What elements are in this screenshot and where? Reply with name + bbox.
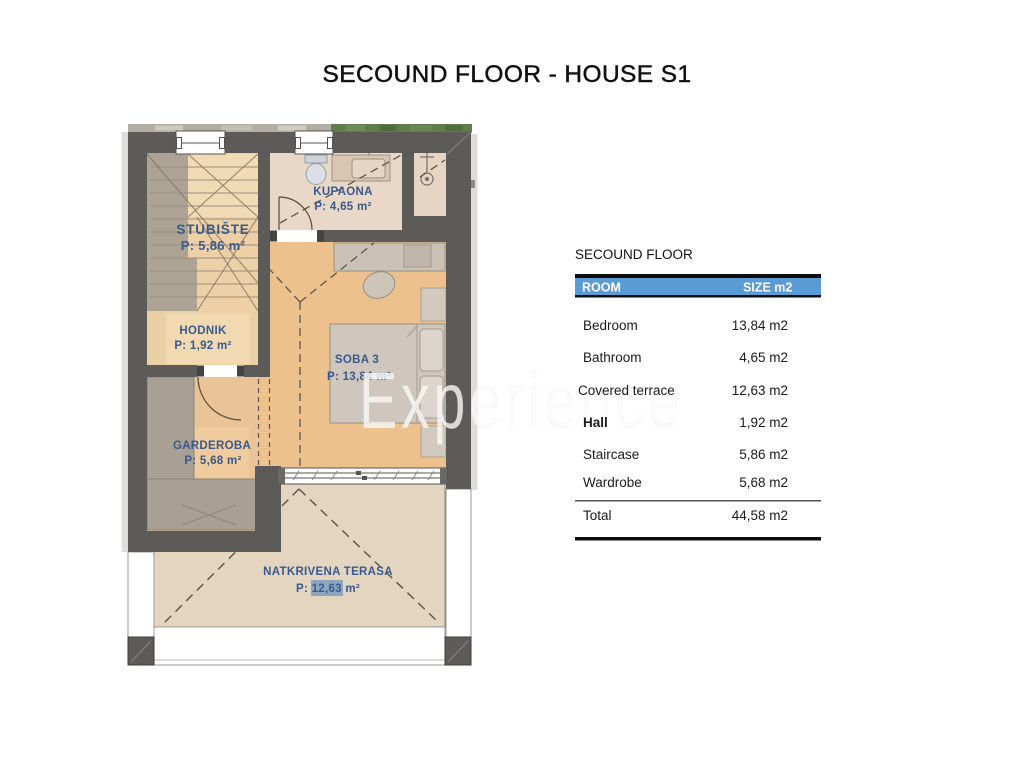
svg-text:KUPAONA: KUPAONA (313, 186, 372, 198)
svg-text:12,63 m2: 12,63 m2 (732, 383, 788, 398)
svg-text:SECOUND FLOOR - HOUSE S1: SECOUND FLOOR - HOUSE S1 (323, 61, 692, 88)
svg-text:Hall: Hall (583, 415, 608, 430)
svg-text:1,92 m2: 1,92 m2 (739, 415, 788, 430)
svg-text:Staircase: Staircase (583, 447, 639, 462)
svg-text:Wardrobe: Wardrobe (583, 475, 642, 490)
svg-text:Total: Total (583, 508, 612, 523)
svg-text:Covered terrace: Covered terrace (578, 383, 675, 398)
svg-text:STUBIŠTE: STUBIŠTE (176, 222, 249, 237)
svg-text:5,86 m2: 5,86 m2 (739, 447, 788, 462)
svg-text:P: 4,65 m²: P: 4,65 m² (314, 201, 371, 213)
svg-text:NATKRIVENA TERASA: NATKRIVENA TERASA (263, 566, 393, 578)
svg-text:4,65 m2: 4,65 m2 (739, 350, 788, 365)
svg-text:13,84 m2: 13,84 m2 (732, 318, 788, 333)
svg-text:HODNIK: HODNIK (179, 325, 227, 337)
svg-text:P: 12,63 m²: P: 12,63 m² (296, 583, 360, 595)
svg-text:SIZE m2: SIZE m2 (743, 281, 792, 295)
svg-text:P: 5,86 m²: P: 5,86 m² (181, 238, 246, 253)
svg-text:P: 5,68 m²: P: 5,68 m² (184, 455, 241, 467)
svg-text:Bedroom: Bedroom (583, 318, 638, 333)
svg-text:Experience: Experience (359, 356, 683, 446)
svg-text:P: 1,92 m²: P: 1,92 m² (174, 340, 231, 352)
svg-text:SECOUND FLOOR: SECOUND FLOOR (575, 247, 693, 262)
svg-text:GARDEROBA: GARDEROBA (173, 440, 251, 452)
svg-text:Bathroom: Bathroom (583, 350, 642, 365)
svg-text:ROOM: ROOM (582, 281, 621, 295)
svg-text:5,68 m2: 5,68 m2 (739, 475, 788, 490)
svg-text:44,58 m2: 44,58 m2 (732, 508, 788, 523)
